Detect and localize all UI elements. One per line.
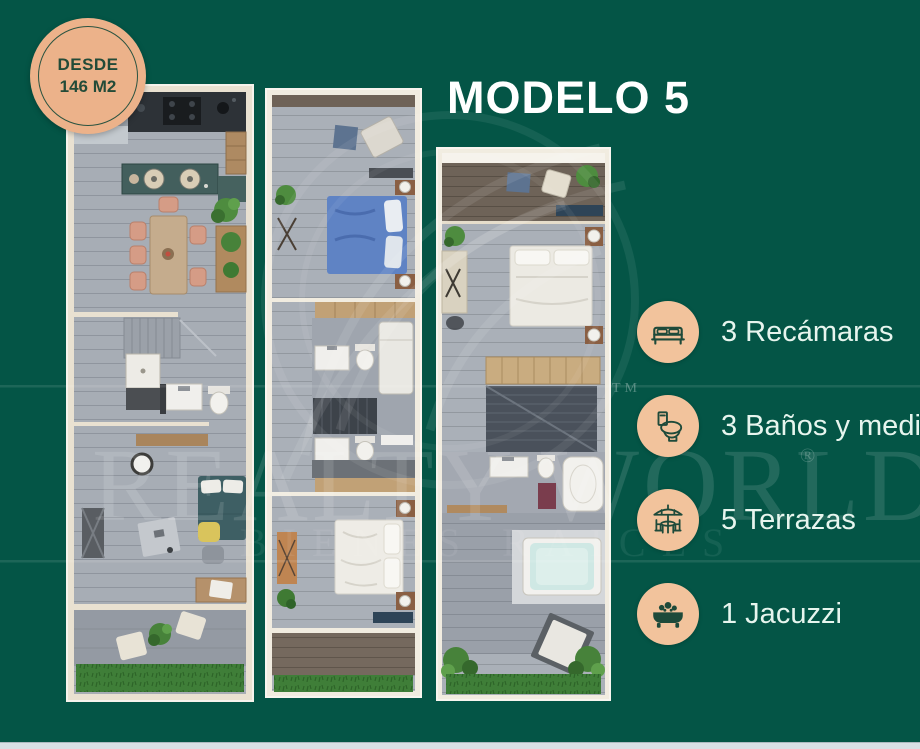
- bathtub-icon: [649, 595, 687, 633]
- grass-strip-2: [274, 675, 413, 692]
- wardrobe: [486, 357, 600, 384]
- bedroom-4-bed: [510, 246, 592, 326]
- feature-jacuzzi: 1 Jacuzzi: [637, 583, 920, 645]
- terrace-floor-2: [272, 633, 415, 675]
- kitchen-island: [122, 164, 218, 194]
- badge-area-value: 146 M2: [60, 77, 117, 97]
- floor-plan-level-1: [66, 84, 254, 702]
- grass-strip-3: [446, 674, 601, 694]
- rug: [333, 125, 358, 150]
- umbrella-table-icon: [649, 501, 687, 539]
- wood-shelf: [315, 302, 415, 318]
- console-table: [136, 434, 208, 446]
- feature-terraces-label: 5 Terrazas: [721, 504, 856, 537]
- toilet-icon: [649, 407, 687, 445]
- bedroom-2-bed: [327, 196, 407, 274]
- stairs-2: [313, 398, 377, 434]
- feature-bedrooms-label: 3 Recámaras: [721, 316, 893, 349]
- feature-bedrooms-circle: [637, 301, 699, 363]
- area-badge-ring: DESDE 146 M2: [38, 26, 138, 126]
- jacuzzi: [523, 538, 601, 595]
- flyer-canvas: TM REALTY WORLD ® BIENES RAICES DESDE 14…: [0, 0, 920, 749]
- floor-plan-level-3: [436, 147, 611, 701]
- feature-jacuzzi-label: 1 Jacuzzi: [721, 598, 842, 631]
- round-chair: [132, 454, 152, 474]
- feature-bathrooms-label: 3 Baños y medio: [721, 410, 920, 443]
- stairs-3: [486, 386, 597, 452]
- bench: [196, 578, 246, 602]
- feature-jacuzzi-circle: [637, 583, 699, 645]
- area-badge: DESDE 146 M2: [30, 18, 146, 134]
- feature-terraces-circle: [637, 489, 699, 551]
- navy-console-3: [556, 205, 603, 216]
- bed-icon: [649, 313, 687, 351]
- navy-console: [373, 612, 413, 623]
- media-console: [369, 168, 413, 178]
- grass-strip: [76, 664, 244, 692]
- feature-terraces: 5 Terrazas: [637, 489, 920, 551]
- feature-bathrooms: 3 Baños y medio: [637, 395, 920, 457]
- bedroom-3-bed: [335, 520, 403, 594]
- rug-3: [506, 172, 530, 193]
- bottom-edge-strip: [0, 742, 920, 749]
- page-title: MODELO 5: [447, 72, 690, 124]
- bathroom-3: [312, 435, 415, 492]
- feature-list: 3 Recámaras 3 Baños y medio: [637, 301, 920, 645]
- feature-bathrooms-circle: [637, 395, 699, 457]
- shelf-unit: [82, 508, 104, 558]
- feature-bedrooms: 3 Recámaras: [637, 301, 920, 363]
- badge-desde-label: DESDE: [57, 55, 118, 75]
- floor-plan-level-2: [265, 88, 422, 698]
